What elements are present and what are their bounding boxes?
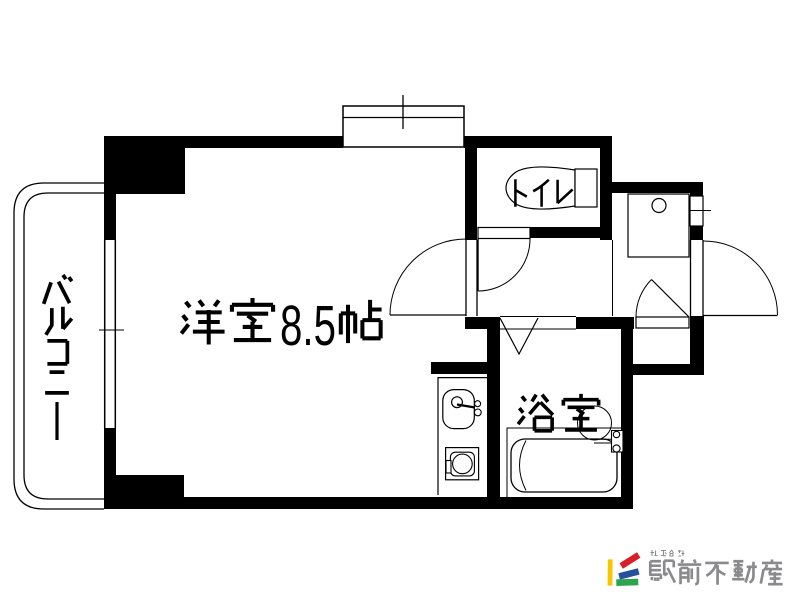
svg-text:8.5: 8.5	[280, 294, 336, 358]
